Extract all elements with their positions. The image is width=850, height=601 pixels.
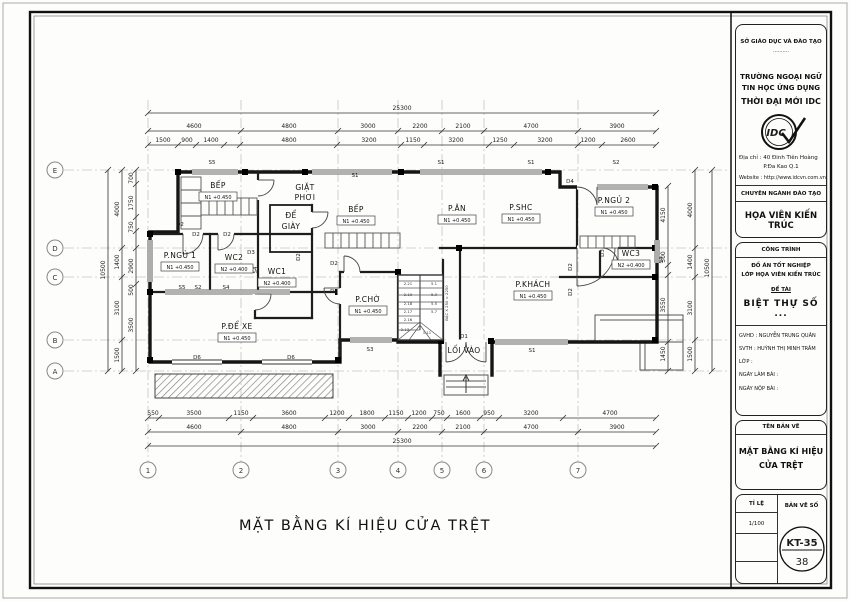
- project-line-2: LỚP HỌA VIÊN KIẾN TRÚC: [736, 272, 826, 278]
- school-name-1: TRƯỜNG NGOẠI NGỮ: [736, 73, 826, 81]
- stair-note: BẬC X 250 = 2250: [444, 285, 449, 321]
- floor-plan-canvas: 1 2 3 4 5 6 7 E D C B A 25300 4600 4800 …: [0, 0, 850, 601]
- sheet-no-header: BẢN VẼ SỐ: [777, 503, 826, 509]
- dim: 10500: [704, 258, 711, 277]
- dim: 1500: [114, 347, 121, 362]
- dim: 2200: [412, 424, 427, 431]
- ngay-lam-row: NGÀY LÀM BÀI :: [736, 372, 829, 378]
- dim-total-bottom: 25300: [392, 438, 411, 445]
- dim: 1150: [388, 410, 403, 417]
- dim: 3200: [448, 137, 463, 144]
- titleblock-drawing-name: TÊN BẢN VẼ MẶT BẰNG KÍ HIỆU CỬA TRỆT: [735, 420, 827, 490]
- grid-row-label: E: [53, 167, 57, 175]
- dept-name: SỞ GIÁO DỤC VÀ ĐÀO TẠO: [736, 39, 826, 45]
- grid-col-label: 6: [482, 467, 487, 475]
- svth-row: SVTH : HUỲNH THỊ MINH TRÂM: [736, 346, 829, 352]
- room-label: GIẶT: [295, 183, 314, 192]
- dim: 3200: [523, 410, 538, 417]
- door-tag: D2: [568, 288, 574, 296]
- dim: 1400: [687, 254, 694, 269]
- dim: 1200: [580, 137, 595, 144]
- dim: 3000: [360, 123, 375, 130]
- school-name-2: TIN HỌC ỨNG DỤNG: [736, 84, 826, 92]
- room-label: P.NGỦ 2: [598, 195, 631, 205]
- door-tag: D6: [193, 355, 201, 361]
- dim: 500: [128, 284, 135, 296]
- window-tag: S4: [659, 256, 665, 263]
- room-level: N1 +0.450: [166, 265, 193, 271]
- dim: 750: [433, 410, 445, 417]
- grid-col-label: 1: [146, 467, 150, 475]
- room-level: N1 +0.450: [223, 336, 250, 342]
- dim: 4800: [281, 123, 296, 130]
- scale-value: 1/100: [736, 521, 777, 527]
- room-label: P.CHỜ: [355, 295, 380, 304]
- grid-row-label: D: [52, 245, 57, 253]
- window-tag: S1: [529, 348, 536, 354]
- entry-steps: [444, 375, 488, 395]
- window-tag: S2: [613, 160, 620, 166]
- door-tag: D2: [176, 222, 184, 228]
- grid-lines: [64, 100, 727, 462]
- window-tag: S4: [253, 266, 259, 273]
- dim: 3200: [537, 137, 552, 144]
- dim: 3900: [609, 123, 624, 130]
- scale-header: TỈ LỆ: [736, 501, 777, 507]
- major-name: HỌA VIÊN KIẾN TRÚC: [736, 211, 826, 231]
- door-tag: D2: [192, 232, 200, 238]
- room-label: PHƠI: [295, 193, 316, 202]
- stair-step: 2.21: [404, 281, 413, 286]
- grid-col-label: 7: [576, 467, 580, 475]
- grid-col-label: 3: [336, 467, 340, 475]
- ngay-nop-row: NGÀY NỘP BÀI :: [736, 386, 829, 392]
- room-label: WC3: [622, 249, 641, 258]
- exterior-walls: [150, 172, 657, 375]
- door-tag: D6: [287, 355, 295, 361]
- dim: 3900: [609, 424, 624, 431]
- dim: 4600: [186, 123, 201, 130]
- dim: 4700: [523, 123, 538, 130]
- door-tag: D4: [566, 179, 574, 185]
- window-tag: S5: [209, 160, 216, 166]
- dim: 1500: [155, 137, 170, 144]
- stair-step: 5.5: [431, 301, 438, 306]
- dim: 4600: [186, 424, 201, 431]
- room-level: N1 +0.450: [204, 195, 231, 201]
- dim: 4800: [281, 137, 296, 144]
- address-1: Địa chỉ : 40 Đinh Tiên Hoàng: [736, 155, 829, 161]
- dim: 2100: [455, 123, 470, 130]
- dim: 3500: [128, 317, 135, 332]
- grid-col-label: 4: [396, 467, 401, 475]
- dim: 2200: [412, 123, 427, 130]
- dim: 2900: [128, 258, 135, 273]
- window-tag: S2: [195, 285, 202, 291]
- driveway-ramp: [155, 374, 333, 398]
- dim: 2600: [620, 137, 635, 144]
- room-label: WC1: [268, 267, 287, 276]
- window-tag: S5: [179, 285, 186, 291]
- dim: 1750: [128, 195, 135, 210]
- stair-step: 5.1: [431, 281, 438, 286]
- sheet-code: KT-35: [786, 538, 817, 549]
- room-label: ĐỂ: [285, 210, 296, 220]
- dim: 1150: [405, 137, 420, 144]
- dim: 4000: [114, 201, 121, 216]
- topic-name: BIỆT THỰ SỐ ...: [736, 299, 826, 319]
- dept-dots: ..........: [736, 48, 826, 54]
- room-label: P.KHÁCH: [516, 280, 551, 289]
- drawing-sheet: 1 2 3 4 5 6 7 E D C B A 25300 4600 4800 …: [0, 0, 850, 601]
- dim: 3600: [281, 410, 296, 417]
- dim: 4800: [281, 424, 296, 431]
- room-level: N2 +0.400: [220, 267, 247, 273]
- room-label: P.ĐỂ XE: [221, 321, 252, 331]
- room-label: P.ĂN: [448, 204, 466, 213]
- door-tag: D1: [460, 334, 468, 340]
- dim: 4700: [602, 410, 617, 417]
- dim: 3200: [361, 137, 376, 144]
- grid-col-label: 2: [239, 467, 243, 475]
- door-tag: D2: [568, 263, 574, 271]
- sheet-number: 38: [796, 557, 809, 568]
- project-line-1: ĐỒ ÁN TỐT NGHIỆP: [736, 263, 826, 269]
- stair-step: 2.17: [404, 309, 413, 314]
- door-tag: D3: [247, 250, 255, 256]
- door-tag: D3: [600, 249, 606, 257]
- dim: 550: [147, 410, 159, 417]
- room-label: WC2: [225, 253, 244, 262]
- website: Website : http://www.idcvn.com.vn: [736, 175, 829, 181]
- stair-step: 2.18: [404, 301, 413, 306]
- drawing-name-header: TÊN BẢN VẼ: [736, 424, 826, 430]
- room-level: N1 +0.450: [507, 217, 534, 223]
- room-label: BẾP: [348, 204, 364, 214]
- room-level: N1 +0.450: [342, 219, 369, 225]
- dim: 1200: [411, 410, 426, 417]
- grid-row-label: A: [53, 368, 58, 376]
- school-name-3: THỜI ĐẠI MỚI IDC: [736, 97, 826, 106]
- dim: 4150: [660, 207, 667, 222]
- titleblock-project: CÔNG TRÌNH ĐỒ ÁN TỐT NGHIỆP LỚP HỌA VIÊN…: [735, 242, 827, 416]
- dim: 1500: [687, 346, 694, 361]
- topic-header: ĐỀ TÀI: [736, 287, 826, 293]
- stair-step: 2.13: [401, 327, 410, 332]
- door-tag: D2: [223, 232, 231, 238]
- dim: 3100: [114, 300, 121, 315]
- dim: 700: [128, 172, 135, 184]
- room-label: LỐI VÀO: [447, 345, 480, 355]
- dim: 3500: [186, 410, 201, 417]
- dim: 1800: [359, 410, 374, 417]
- dim: 1250: [492, 137, 507, 144]
- door-tag: D2: [330, 289, 338, 295]
- dim: 950: [483, 410, 495, 417]
- lop-row: LỚP :: [736, 359, 829, 365]
- dim: 10500: [100, 260, 107, 279]
- sheet-no-circle: KT-35 38: [777, 519, 826, 579]
- window-tag: S1: [528, 160, 535, 166]
- major-header: CHUYÊN NGÀNH ĐÀO TẠO: [736, 191, 826, 197]
- dim: 3550: [660, 297, 667, 312]
- titleblock-school: SỞ GIÁO DỤC VÀ ĐÀO TẠO .......... TRƯỜNG…: [735, 24, 827, 238]
- dim: 4000: [687, 202, 694, 217]
- room-level: N1 +0.450: [600, 210, 627, 216]
- drawing-name-2: CỬA TRỆT: [736, 461, 826, 470]
- room-label: GIÀY: [282, 222, 301, 231]
- grid-col-label: 5: [440, 467, 444, 475]
- dim: 1150: [233, 410, 248, 417]
- dim: 1600: [455, 410, 470, 417]
- grid-row-label: C: [53, 274, 58, 282]
- room-level: N2 +0.400: [263, 281, 290, 287]
- window-tag: S1: [438, 160, 445, 166]
- project-header: CÔNG TRÌNH: [736, 247, 826, 253]
- door-tag: D2: [330, 261, 338, 267]
- room-level: N1 +0.450: [443, 218, 470, 224]
- drawing-name-1: MẶT BẰNG KÍ HIỆU: [736, 447, 826, 456]
- plan-title: MẶT BẰNG KÍ HIỆU CỬA TRỆT: [239, 515, 491, 534]
- dim: 1450: [660, 346, 667, 361]
- stair-step: 5.3: [431, 292, 438, 297]
- address-2: P.Đa Kao Q.1: [736, 164, 826, 170]
- gvhd-row: GVHD : NGUYỄN TRUNG QUÂN: [736, 333, 829, 339]
- door-tag: D2: [296, 253, 302, 261]
- dim: 2100: [455, 424, 470, 431]
- dim: 3000: [360, 424, 375, 431]
- idc-logo: IDC: [736, 111, 826, 153]
- dim: 1200: [329, 410, 344, 417]
- stair-step: 2.19: [404, 292, 413, 297]
- dim: 4700: [523, 424, 538, 431]
- room-label: P.SHC: [509, 203, 532, 212]
- room-level: N1 +0.450: [519, 294, 546, 300]
- stair-step: 5.7: [431, 309, 438, 314]
- dim: 750: [128, 221, 135, 233]
- room-level: N1 +0.450: [354, 309, 381, 315]
- window-tag: S1: [352, 173, 359, 179]
- grid-row-label: B: [53, 337, 58, 345]
- room-level: N2 +0.400: [617, 263, 644, 269]
- stair-step: 1.11: [423, 330, 432, 335]
- dim-total-top: 25300: [392, 105, 411, 112]
- dim: 1400: [114, 254, 121, 269]
- room-label: BẾP: [210, 180, 226, 190]
- dim: 3100: [687, 300, 694, 315]
- dim: 900: [181, 137, 193, 144]
- window-tag: S3: [367, 347, 374, 353]
- window-tag: S4: [223, 285, 230, 291]
- dim: 1400: [203, 137, 218, 144]
- titleblock-scale: TỈ LỆ 1/100 BẢN VẼ SỐ KT-35 38: [735, 494, 827, 584]
- stair-step: 2.16: [404, 317, 413, 322]
- room-label: P.NGỦ 1: [164, 250, 197, 260]
